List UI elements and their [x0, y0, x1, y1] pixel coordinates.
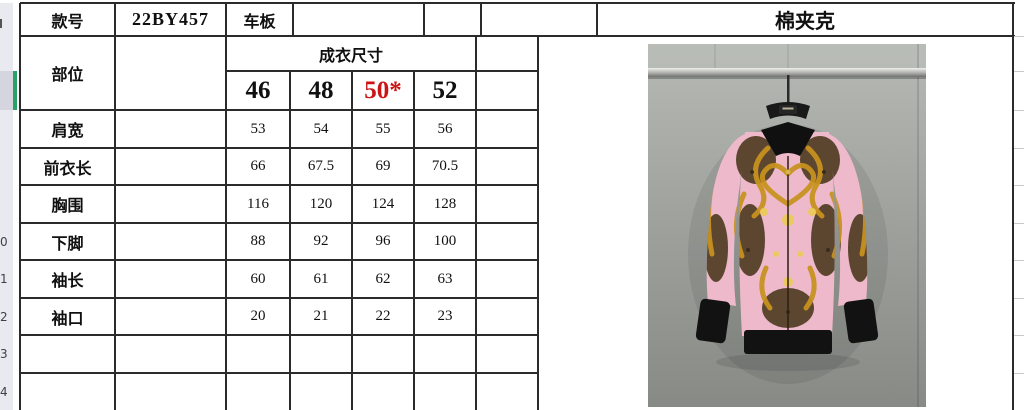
measure-value-cell[interactable]: 53 — [226, 110, 290, 148]
spreadsheet-screenshot: 01234款号22BY457车板棉夹克部位成衣尺寸464850*52肩宽5354… — [0, 0, 1024, 410]
light-gridline — [1014, 298, 1024, 299]
measure-value-cell[interactable]: 92 — [290, 223, 352, 260]
blank-cell[interactable] — [476, 260, 538, 298]
measure-value-cell[interactable]: 69 — [352, 148, 414, 185]
size-header-cell[interactable]: 46 — [226, 71, 290, 110]
row-number-partial: 4 — [0, 373, 13, 410]
size-header-cell[interactable]: 48 — [290, 71, 352, 110]
row-number-partial: 0 — [0, 223, 13, 260]
blank-cell[interactable] — [476, 185, 538, 223]
jacket-cuff-left — [695, 298, 731, 344]
blank-cell[interactable] — [476, 223, 538, 260]
grid-line — [1012, 3, 1014, 410]
measure-value-cell[interactable]: 21 — [290, 298, 352, 335]
measure-value-cell[interactable]: 23 — [414, 298, 476, 335]
product-name-cell[interactable]: 棉夹克 — [597, 3, 1013, 36]
style-no-label-cell[interactable]: 款号 — [20, 3, 115, 36]
size-header-cell[interactable]: 52 — [414, 71, 476, 110]
blank-cell[interactable] — [115, 110, 226, 148]
row-header[interactable] — [0, 185, 13, 224]
blank-cell[interactable] — [115, 185, 226, 223]
size-header-cell[interactable]: 50* — [352, 71, 414, 110]
blank-cell[interactable] — [115, 36, 226, 110]
measure-value-cell[interactable]: 100 — [414, 223, 476, 260]
light-gridline — [1014, 223, 1024, 224]
measure-label-cell[interactable]: 下脚 — [20, 223, 115, 260]
board-label-cell[interactable]: 车板 — [226, 3, 293, 36]
blank-cell[interactable] — [293, 3, 424, 36]
measure-value-cell[interactable]: 55 — [352, 110, 414, 148]
measure-value-cell[interactable]: 61 — [290, 260, 352, 298]
jacket-hem — [744, 330, 832, 354]
blank-cell[interactable] — [115, 223, 226, 260]
measure-value-cell[interactable]: 62 — [352, 260, 414, 298]
style-no-value-cell[interactable]: 22BY457 — [115, 3, 226, 36]
part-label-cell[interactable]: 部位 — [20, 36, 115, 110]
measure-label-cell[interactable]: 胸围 — [20, 185, 115, 223]
measure-value-cell[interactable]: 128 — [414, 185, 476, 223]
row-number-partial: 2 — [0, 298, 13, 335]
light-gridline — [1014, 260, 1024, 261]
row-number-partial: 1 — [0, 260, 13, 298]
measure-value-cell[interactable]: 22 — [352, 298, 414, 335]
measure-value-cell[interactable]: 88 — [226, 223, 290, 260]
row-header[interactable] — [0, 110, 13, 149]
light-gridline — [1014, 110, 1024, 111]
measure-value-cell[interactable]: 116 — [226, 185, 290, 223]
measure-value-cell[interactable]: 66 — [226, 148, 290, 185]
blank-cell[interactable] — [476, 148, 538, 185]
row-number-partial: 3 — [0, 335, 13, 373]
jacket-cuff-right — [843, 298, 879, 344]
measure-value-cell[interactable]: 60 — [226, 260, 290, 298]
row-selection-accent — [13, 71, 17, 110]
measure-label-cell[interactable]: 袖长 — [20, 260, 115, 298]
light-gridline — [1014, 71, 1024, 72]
light-gridline — [1014, 148, 1024, 149]
blank-cell[interactable] — [476, 71, 538, 110]
measure-value-cell[interactable]: 67.5 — [290, 148, 352, 185]
row-number-partial — [0, 19, 2, 28]
blank-cell[interactable] — [476, 110, 538, 148]
row-header[interactable] — [0, 148, 13, 186]
measure-value-cell[interactable]: 70.5 — [414, 148, 476, 185]
light-gridline — [1014, 335, 1024, 336]
measure-label-cell[interactable]: 肩宽 — [20, 110, 115, 148]
product-photo-canvas — [648, 44, 926, 407]
measure-value-cell[interactable]: 54 — [290, 110, 352, 148]
light-gridline — [1014, 373, 1024, 374]
measure-label-cell[interactable]: 袖口 — [20, 298, 115, 335]
blank-cell[interactable] — [115, 260, 226, 298]
light-gridline — [1014, 36, 1024, 37]
measure-value-cell[interactable]: 120 — [290, 185, 352, 223]
blank-cell[interactable] — [424, 3, 481, 36]
measure-value-cell[interactable]: 124 — [352, 185, 414, 223]
measure-value-cell[interactable]: 63 — [414, 260, 476, 298]
row-header[interactable] — [0, 36, 13, 72]
light-gridline — [1014, 185, 1024, 186]
size-section-title-cell[interactable]: 成衣尺寸 — [226, 36, 476, 71]
blank-cell[interactable] — [481, 3, 597, 36]
measure-label-cell[interactable]: 前衣长 — [20, 148, 115, 185]
grid-line — [20, 372, 538, 374]
row-header-selected[interactable] — [0, 71, 13, 111]
blank-cell[interactable] — [476, 36, 538, 71]
blank-cell[interactable] — [476, 298, 538, 335]
product-photo[interactable] — [648, 44, 926, 407]
measure-value-cell[interactable]: 96 — [352, 223, 414, 260]
measure-value-cell[interactable]: 20 — [226, 298, 290, 335]
blank-cell[interactable] — [115, 148, 226, 185]
blank-cell[interactable] — [115, 298, 226, 335]
measure-value-cell[interactable]: 56 — [414, 110, 476, 148]
